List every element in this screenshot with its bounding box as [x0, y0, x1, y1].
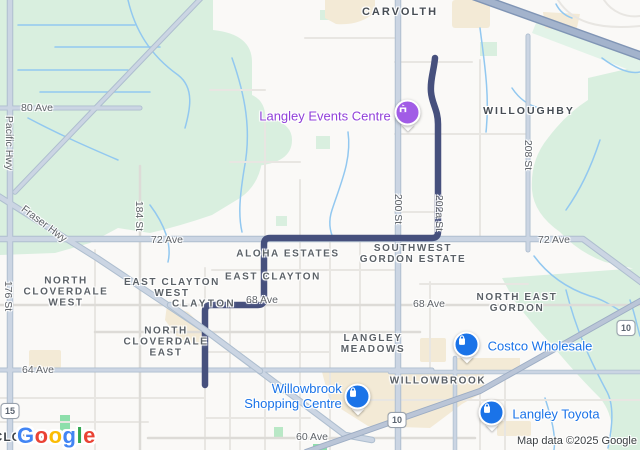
area-label-line: LANGLEY: [341, 333, 406, 344]
street-label-202a-st: 202a St: [433, 195, 445, 231]
street-label-176-st: 176 St: [2, 281, 14, 311]
area-label-willoughby: WILLOUGHBY: [483, 105, 575, 117]
area-label-line: EAST CLAYTON: [124, 277, 220, 288]
willowbrook-shopping-centre-pin[interactable]: [345, 383, 372, 416]
logo-letter: G: [17, 423, 35, 448]
shopping-bag-icon: [345, 383, 371, 409]
area-label-line: GORDON: [477, 303, 558, 314]
street-label-208-st: 208 St: [522, 140, 534, 170]
area-label-line: WEST: [24, 298, 109, 309]
arts-centre-icon: [395, 99, 421, 125]
street-label-68-ave-west: 68 Ave: [246, 294, 278, 306]
street-label-64-ave: 64 Ave: [22, 364, 54, 376]
area-label-north-cloverdale-east: NORTH CLOVERDALE EAST: [124, 326, 209, 359]
area-label-langley-meadows: LANGLEY MEADOWS: [341, 333, 406, 355]
street-label-80-ave: 80 Ave: [21, 102, 53, 114]
logo-letter: e: [83, 423, 96, 448]
area-label-aloha-estates: ALOHA ESTATES: [236, 249, 339, 260]
area-label-carvolth: CARVOLTH: [362, 6, 438, 18]
google-logo[interactable]: Google: [17, 423, 96, 449]
area-label-north-east-gordon: NORTH EAST GORDON: [477, 292, 558, 314]
langley-toyota-pin[interactable]: [479, 399, 506, 432]
area-label-line: NORTH: [24, 276, 109, 287]
area-label-line: EAST: [124, 348, 209, 359]
logo-letter: o: [35, 423, 49, 448]
street-label-72-ave-west: 72 Ave: [151, 234, 183, 246]
area-label-line: NORTH: [124, 326, 209, 337]
street-label-184-st: 184 St: [133, 201, 145, 231]
map-canvas[interactable]: CLOVERDALE CARVOLTH WILLOUGHBY ALOHA EST…: [0, 0, 640, 450]
poi-label-langley-toyota[interactable]: Langley Toyota: [512, 407, 599, 422]
area-label-line: WEST: [124, 288, 220, 299]
area-label-willowbrook: WILLOWBROOK: [390, 376, 486, 387]
area-label-line: NORTH EAST: [477, 292, 558, 303]
street-label-200-st: 200 St: [392, 194, 404, 224]
street-label-pacific-hwy: Pacific Hwy: [3, 116, 15, 170]
area-label-line: MEADOWS: [341, 344, 406, 355]
area-label-line: CLOVERDALE: [24, 287, 109, 298]
shopping-bag-icon: [454, 331, 480, 357]
map-attribution: Map data ©2025 Google: [517, 435, 637, 447]
area-label-line: GORDON ESTATE: [360, 254, 467, 265]
logo-letter: o: [49, 423, 63, 448]
shopping-bag-icon: [479, 399, 505, 425]
poi-label-willowbrook-shopping-centre[interactable]: Willowbrook Shopping Centre: [244, 381, 342, 411]
area-label-line: SOUTHWEST: [360, 243, 467, 254]
highway-10-shield: 10: [617, 320, 636, 336]
poi-label-costco-wholesale[interactable]: Costco Wholesale: [488, 339, 593, 354]
area-label-east-clayton: EAST CLAYTON: [225, 272, 321, 283]
langley-events-centre-pin[interactable]: [395, 99, 422, 132]
logo-letter: g: [63, 423, 77, 448]
poi-label-line: Willowbrook: [244, 381, 342, 396]
area-label-north-cloverdale-west: NORTH CLOVERDALE WEST: [24, 276, 109, 309]
poi-label-line: Shopping Centre: [244, 396, 342, 411]
area-label-line: CLOVERDALE: [124, 337, 209, 348]
street-label-68-ave-east: 68 Ave: [413, 298, 445, 310]
area-label-southwest-gordon: SOUTHWEST GORDON ESTATE: [360, 243, 467, 265]
street-label-60-ave: 60 Ave: [296, 431, 328, 443]
highway-15-shield: 15: [1, 403, 20, 419]
area-label-clayton: CLAYTON: [172, 299, 236, 310]
poi-label-langley-events-centre[interactable]: Langley Events Centre: [259, 109, 391, 124]
street-label-72-ave-east: 72 Ave: [538, 234, 570, 246]
costco-pin[interactable]: [454, 331, 481, 364]
area-label-east-clayton-west: EAST CLAYTON WEST: [124, 277, 220, 299]
highway-10-shield: 10: [388, 412, 407, 428]
